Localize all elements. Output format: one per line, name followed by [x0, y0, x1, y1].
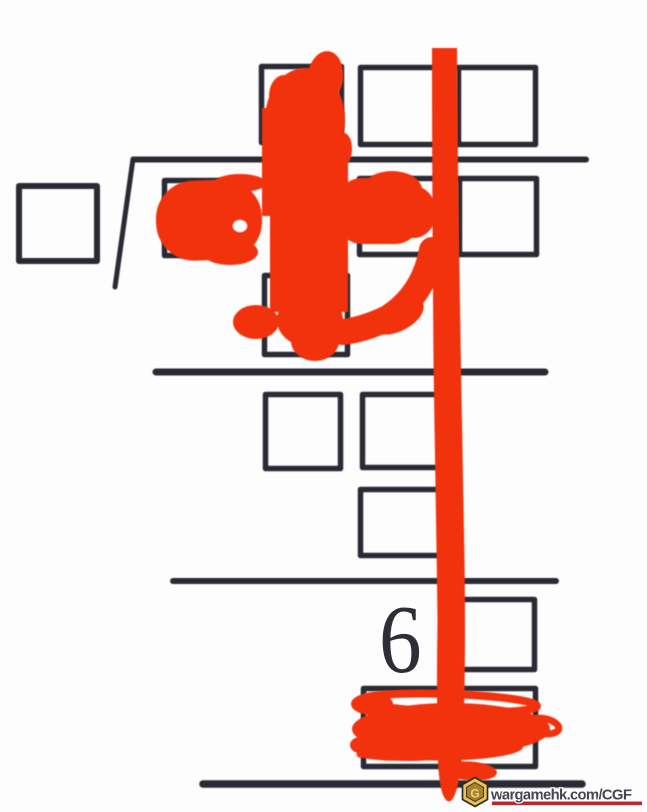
svg-text:6: 6 — [379, 586, 422, 693]
svg-text:wargamehk.com/CGF: wargamehk.com/CGF — [490, 787, 632, 804]
svg-text:G: G — [470, 787, 479, 801]
